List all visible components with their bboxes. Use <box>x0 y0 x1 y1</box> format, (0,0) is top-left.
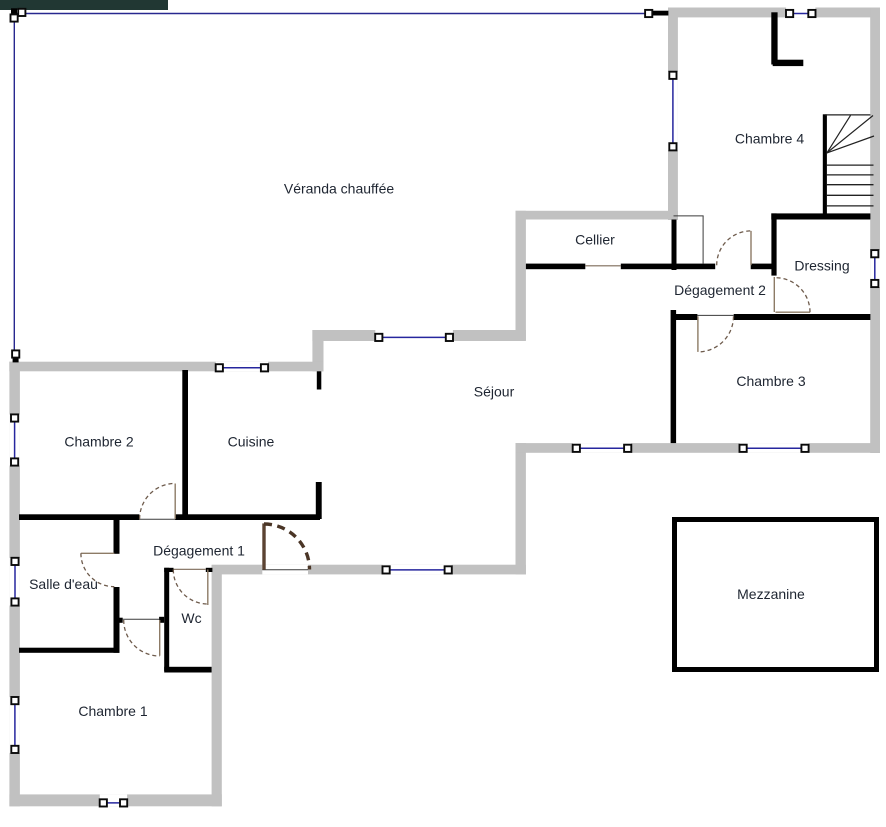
svg-text:Chambre 1: Chambre 1 <box>78 703 147 719</box>
svg-text:Wc: Wc <box>181 610 201 626</box>
svg-text:Séjour: Séjour <box>474 384 515 400</box>
svg-text:Salle d'eau: Salle d'eau <box>29 576 98 592</box>
svg-text:Cuisine: Cuisine <box>228 434 275 450</box>
svg-text:Véranda chauffée: Véranda chauffée <box>284 181 394 197</box>
svg-text:Dressing: Dressing <box>794 258 849 274</box>
svg-text:Cellier: Cellier <box>575 232 615 248</box>
svg-text:Chambre 2: Chambre 2 <box>64 434 133 450</box>
svg-text:Chambre 4: Chambre 4 <box>735 131 804 147</box>
svg-text:Chambre 3: Chambre 3 <box>736 373 805 389</box>
svg-text:Dégagement 1: Dégagement 1 <box>153 543 245 559</box>
svg-text:Mezzanine: Mezzanine <box>737 586 805 602</box>
svg-text:Dégagement 2: Dégagement 2 <box>674 282 766 298</box>
